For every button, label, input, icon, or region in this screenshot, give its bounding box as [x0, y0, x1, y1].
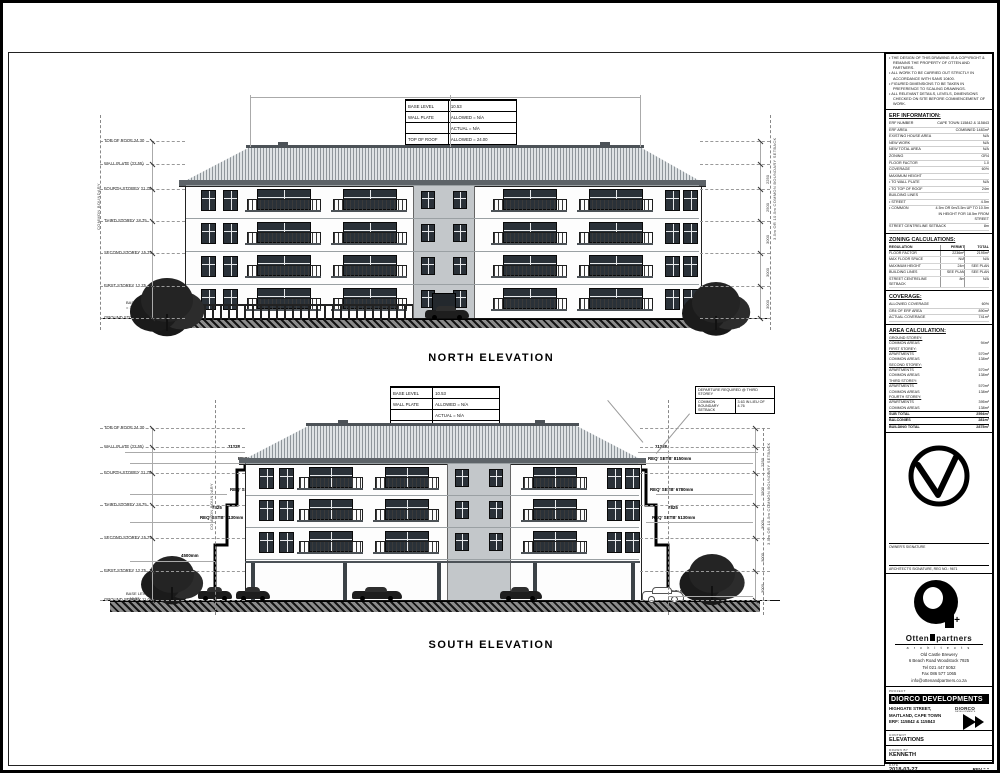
balcony-slab: [491, 243, 567, 245]
coverage-row: ACTUAL COVERAGE741m²: [889, 315, 989, 322]
level-line: [100, 571, 245, 572]
project-address-2: MAITLAND, CAPE TOWN: [889, 713, 941, 720]
architect-stamp-section: OWNER'S SIGNATURE ARCHITECT'S SIGNATURE,…: [886, 433, 992, 574]
level-line: [640, 571, 770, 572]
car-cabin: [652, 587, 672, 594]
coverage-title: COVERAGE:: [889, 294, 989, 300]
car-cabin: [436, 306, 456, 311]
tree-trunk: [171, 587, 173, 601]
area-title: AREA CALCULATION:: [889, 328, 989, 334]
north-elevation-title: NORTH ELEVATION: [428, 352, 554, 364]
zoning-row: STREET CENTRELINE SETBACK8mN/A: [889, 277, 989, 289]
window: [455, 469, 469, 487]
car-cabin: [245, 587, 260, 592]
departure-note: DEPARTURE REQUIRED @ THIRD STOREY COMMON…: [695, 386, 775, 414]
window: [259, 468, 274, 489]
firm-name: Ottenpartners: [889, 634, 989, 643]
setback-dim-line: [668, 596, 753, 597]
dimension-line: [755, 428, 756, 600]
setback-dim-line: [130, 494, 227, 495]
window: [683, 256, 698, 277]
level-line: [100, 600, 245, 601]
level-line: [100, 189, 185, 190]
south-right-boundary-label: 3.5m OR 10.5m COMMON BOUNDARY SETBACK: [766, 442, 771, 545]
firm-block: + Ottenpartners a r c h i t e c t s Old …: [886, 574, 992, 687]
tree-trunk: [711, 586, 713, 600]
dimension-line: [760, 141, 761, 318]
extension-line: [450, 95, 451, 147]
boundary-fence: [188, 304, 413, 320]
note-item: • ALL RELEVANT DETAILS, LEVELS, DIMENSIO…: [889, 92, 989, 107]
window: [489, 533, 503, 551]
window: [453, 191, 467, 209]
project-erf: ERF: 115842 & 115843: [889, 719, 941, 726]
extension-line: [250, 95, 251, 147]
window: [279, 500, 294, 521]
setback-dim-line: [646, 522, 753, 523]
balcony-slab: [577, 243, 653, 245]
level-line: [100, 428, 245, 429]
window: [665, 223, 680, 244]
area-calculation: AREA CALCULATION: GROUND STOREY:COMMON A…: [886, 325, 992, 433]
balcony-slab: [245, 243, 321, 245]
window: [421, 191, 435, 209]
window: [223, 223, 238, 244]
level-line: [100, 286, 185, 287]
balcony-slab: [297, 520, 363, 522]
revision-value: REV " ": [973, 767, 989, 772]
window: [453, 257, 467, 275]
tree-trunk: [166, 314, 168, 330]
setback-dim-line: [130, 463, 245, 464]
departure-cell-left: COMMON BOUNDARY SETBACK: [696, 399, 736, 413]
ground-hatch: [140, 319, 740, 328]
window: [453, 224, 467, 242]
table-row: TOP OF ROOFALLOWED = 24.00: [406, 133, 516, 144]
window: [223, 256, 238, 277]
erf-row: STREET CENTRELINE SETBACK8m: [889, 224, 989, 231]
balcony-slab: [521, 520, 587, 522]
window: [665, 256, 680, 277]
floor-slab-line: [246, 559, 639, 560]
window: [489, 469, 503, 487]
balcony-slab: [577, 309, 653, 311]
zoning-calculations: ZONING CALCULATIONS: REGULATIONPERMITTOT…: [886, 234, 992, 292]
zoning-title: ZONING CALCULATIONS:: [889, 237, 989, 243]
balcony-slab: [491, 210, 567, 212]
window: [665, 289, 680, 310]
dimension-line: [152, 141, 153, 318]
north-right-boundary-label: 3.5m OR 10.5m COMMON BOUNDARY SETBACK: [772, 137, 777, 240]
balcony-slab: [297, 488, 363, 490]
erf-row: • COMMON4.5m OR 0m/3.5m UP TO 10.5m IN H…: [889, 206, 989, 224]
level-line: [640, 505, 770, 506]
window: [259, 532, 274, 553]
content-block: CONTENT ELEVATIONS: [886, 731, 992, 746]
floor-slab-line: [186, 185, 699, 186]
general-notes: • THE DESIGN OF THIS DRAWING IS A COPYRI…: [886, 54, 992, 110]
firm-email: info@ottenandpartners.co.za: [889, 678, 989, 684]
balcony-slab: [577, 210, 653, 212]
area-row: BUILDING TOTAL2875m²: [889, 424, 989, 430]
boundary-line: [668, 400, 669, 615]
architect-signature-line: ARCHITECT'S SIGNATURE, REG NO.: 9671: [889, 565, 989, 571]
table-row: ACTUAL = N/A: [391, 409, 499, 420]
level-line: [640, 428, 770, 429]
drawn-by-block: DRAWN BY KENNETH: [886, 746, 992, 761]
window: [489, 501, 503, 519]
table-row: ACTUAL = N/A: [406, 122, 516, 133]
level-line: [640, 600, 770, 601]
floor-slab-line: [246, 463, 639, 464]
coverage: COVERAGE: ALLOWED COVERAGE60%GR4 OF ERF …: [886, 291, 992, 325]
window: [625, 468, 640, 489]
window: [683, 190, 698, 211]
level-line: [100, 505, 245, 506]
south-elevation-title: SOUTH ELEVATION: [429, 639, 554, 651]
roof: [245, 425, 640, 459]
project-address-1: HIGHGATE STREET,: [889, 706, 941, 713]
dimension-line: [152, 428, 153, 600]
setback-dim-line: [130, 522, 215, 523]
roof-ridge: [246, 145, 644, 148]
window: [625, 532, 640, 553]
table-row: WALL PLATEALLOWED = N/A: [406, 111, 516, 122]
window: [223, 190, 238, 211]
window: [201, 256, 216, 277]
window: [421, 257, 435, 275]
circle-v-icon: [904, 443, 974, 513]
level-line: [100, 253, 185, 254]
note-item: • ALL WORK TO BE CARRIED OUT STRICTLY IN…: [889, 71, 989, 81]
floor-slab-line: [246, 527, 639, 528]
window: [259, 500, 274, 521]
balcony-slab: [577, 276, 653, 278]
level-line: [100, 538, 245, 539]
window: [665, 190, 680, 211]
balcony-slab: [491, 276, 567, 278]
roof-vent: [278, 142, 288, 146]
car-wheel: [432, 315, 437, 320]
car-wheel: [457, 315, 462, 320]
extension-line: [250, 97, 640, 98]
window: [455, 501, 469, 519]
setback-dim-line: [638, 463, 753, 464]
drawing-sheet: BASE LEVEL10.53WALL PLATEALLOWED = N/AAC…: [0, 0, 1000, 773]
balcony-slab: [245, 276, 321, 278]
diorco-logo-icon: DIORCO DEVELOPMENTS: [955, 706, 989, 728]
window: [279, 468, 294, 489]
floor-slab-line: [246, 495, 639, 496]
window: [455, 533, 469, 551]
level-line: [100, 221, 185, 222]
departure-cell-right: 3.63 IN LIEU OF 4.76: [736, 399, 775, 413]
column: [437, 562, 441, 600]
balcony-slab: [331, 210, 407, 212]
roof-vent: [338, 420, 348, 424]
window: [607, 500, 622, 521]
note-item: • THE DESIGN OF THIS DRAWING IS A COPYRI…: [889, 56, 989, 71]
boundary-line: [100, 115, 101, 330]
car-wheel: [360, 596, 365, 601]
window: [607, 468, 622, 489]
car-cabin: [511, 587, 530, 592]
window: [201, 190, 216, 211]
window: [279, 532, 294, 553]
window: [625, 500, 640, 521]
boundary-line: [763, 428, 764, 615]
balcony-slab: [521, 488, 587, 490]
project-name: DIORCO DEVELOPMENTS: [889, 694, 989, 704]
balcony-slab: [373, 488, 439, 490]
owner-signature-line: OWNER'S SIGNATURE: [889, 543, 989, 549]
table-row: WALL PLATEALLOWED = N/A: [391, 398, 499, 409]
level-line: [640, 473, 770, 474]
boundary-line: [215, 400, 216, 615]
departure-title: DEPARTURE REQUIRED @ THIRD STOREY: [696, 387, 774, 399]
column: [631, 562, 635, 600]
table-row: BASE LEVEL10.53: [406, 100, 516, 111]
stamp-logo: [889, 435, 989, 527]
window: [421, 224, 435, 242]
window: [683, 223, 698, 244]
logo-square-icon: [930, 634, 935, 641]
project-label: PROJECT: [889, 689, 989, 693]
erf-title: ERF INFORMATION:: [889, 113, 989, 119]
extension-line: [640, 95, 641, 147]
balcony-slab: [331, 243, 407, 245]
level-line: [100, 141, 185, 142]
level-line: [100, 164, 185, 165]
firm-subtitle: a r c h i t e c t s: [895, 644, 983, 650]
drawn-by-value: KENNETH: [889, 752, 989, 758]
otten-partners-logo-icon: +: [914, 580, 964, 632]
level-line: [100, 318, 185, 319]
balcony-slab: [245, 210, 321, 212]
boundary-line: [770, 115, 771, 330]
balcony-slab: [331, 276, 407, 278]
floor-slab-line: [186, 251, 699, 252]
roof-vent: [600, 142, 610, 146]
parking-soffit: [245, 561, 640, 563]
car-wheel: [388, 596, 393, 601]
column: [343, 562, 347, 600]
window: [201, 223, 216, 244]
level-line: [100, 473, 245, 474]
setback-dim-line: [656, 494, 753, 495]
project-block: PROJECT DIORCO DEVELOPMENTS HIGHGATE STR…: [886, 687, 992, 731]
roof-vent: [535, 420, 545, 424]
car-cabin: [365, 587, 388, 592]
note-item: • FIGURED DIMENSIONS TO BE TAKEN IN PREF…: [889, 82, 989, 92]
date-value: 2018-03-27: [889, 767, 918, 773]
balcony-slab: [373, 552, 439, 554]
balcony-slab: [521, 552, 587, 554]
balcony-slab: [491, 309, 567, 311]
title-block: • THE DESIGN OF THIS DRAWING IS A COPYRI…: [884, 52, 994, 764]
erf-information: ERF INFORMATION: ERF NUMBERCAPE TOWN 115…: [886, 110, 992, 233]
roof: [185, 147, 700, 181]
setback-dim-line: [130, 561, 215, 562]
level-line: [640, 538, 770, 539]
floor-slab-line: [186, 218, 699, 219]
date-block: DATE 2018-03-27 REV " ": [886, 761, 992, 773]
balcony-slab: [373, 520, 439, 522]
table-row: BASE LEVEL10.53: [391, 387, 499, 398]
balcony-slab: [297, 552, 363, 554]
ground-hatch: [110, 601, 760, 612]
floor-slab-line: [186, 284, 699, 285]
setback-dim-line: [125, 452, 245, 453]
window: [607, 532, 622, 553]
level-line: [100, 447, 245, 448]
content-value: ELEVATIONS: [889, 737, 989, 743]
